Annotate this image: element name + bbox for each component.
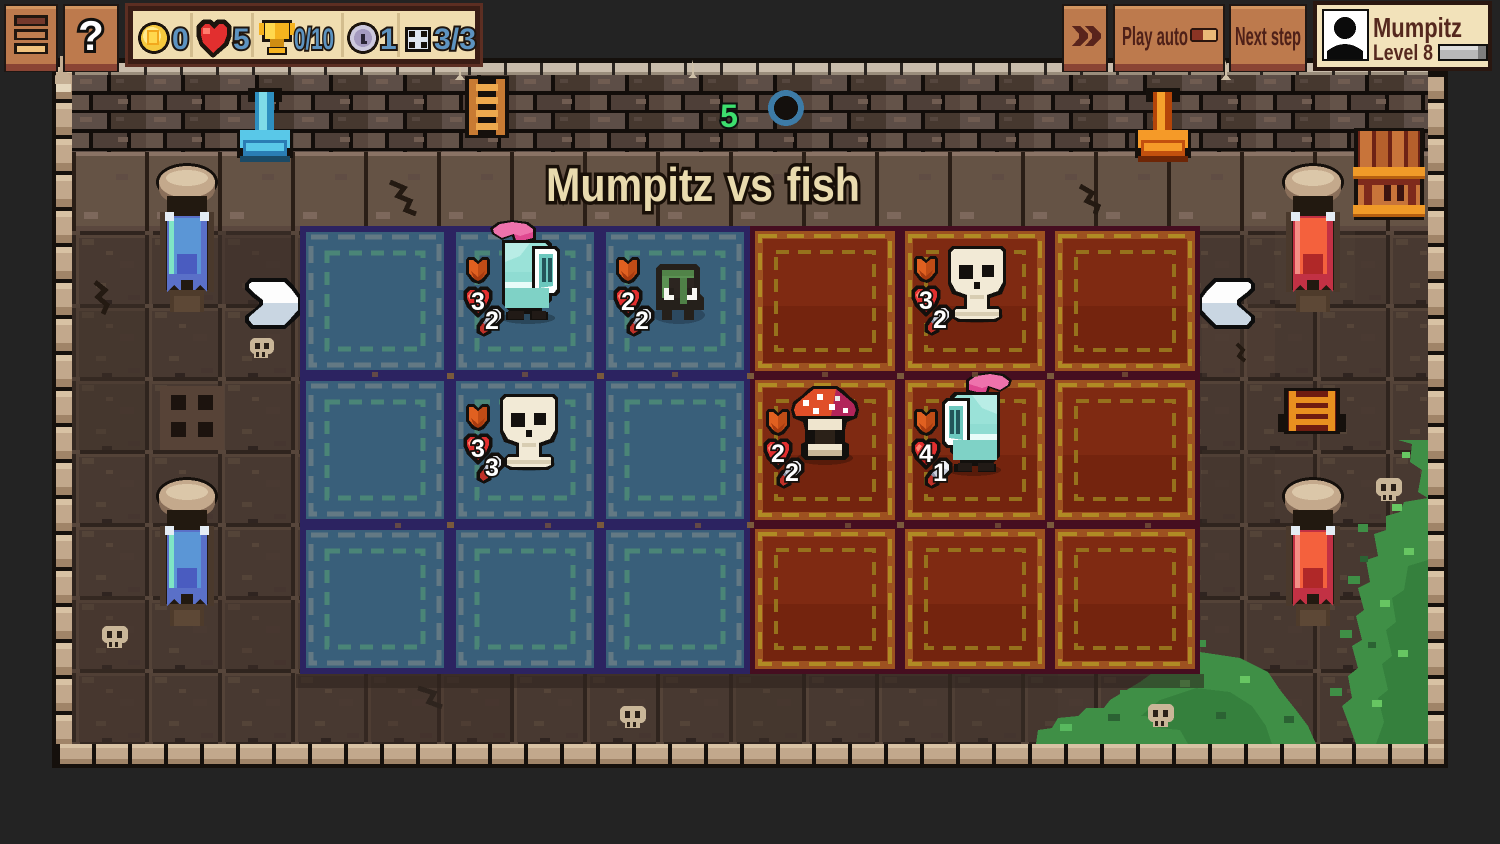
svg-text:Next step: Next step — [1235, 21, 1301, 51]
svg-text:2: 2 — [635, 307, 649, 335]
svg-text:0/10: 0/10 — [294, 23, 334, 56]
svg-text:4: 4 — [919, 440, 933, 468]
svg-text:3: 3 — [485, 454, 499, 482]
svg-text:?: ? — [78, 12, 104, 59]
svg-text:2: 2 — [933, 306, 947, 334]
svg-text:Play auto: Play auto — [1122, 21, 1188, 51]
svg-text:5: 5 — [233, 23, 250, 56]
svg-text:Level 8: Level 8 — [1373, 40, 1433, 65]
svg-text:2: 2 — [485, 307, 499, 335]
svg-text:3/3: 3/3 — [434, 23, 476, 56]
svg-text:Mumpitz: Mumpitz — [1373, 12, 1462, 43]
svg-text:Mumpitz vs fish: Mumpitz vs fish — [546, 158, 860, 211]
svg-text:2: 2 — [621, 288, 635, 316]
svg-text:3: 3 — [471, 435, 485, 463]
svg-text:3: 3 — [471, 288, 485, 316]
svg-text:5: 5 — [720, 98, 738, 134]
svg-text:1: 1 — [933, 459, 947, 487]
svg-text:2: 2 — [771, 440, 785, 468]
svg-text:3: 3 — [919, 287, 933, 315]
svg-text:1: 1 — [380, 23, 397, 56]
svg-text:2: 2 — [785, 459, 799, 487]
svg-text:0: 0 — [172, 23, 189, 56]
